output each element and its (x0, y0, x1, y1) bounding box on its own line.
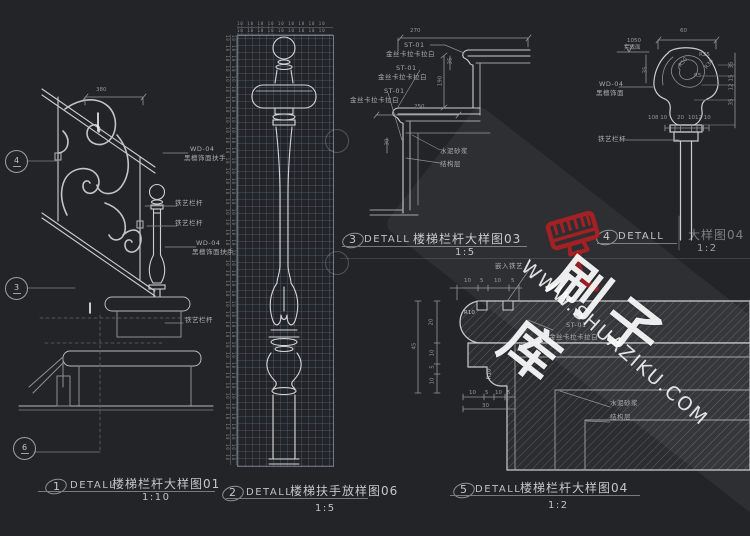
detail-title: 楼梯栏杆大样图01 (112, 478, 220, 490)
radius-label: R10 (487, 369, 493, 380)
detail-scale: 1:2 (548, 501, 569, 511)
detail-scale: 1:10 (142, 493, 170, 503)
material-label: 铁艺栏杆 (598, 136, 626, 143)
section-ref-bubble: 3 (5, 277, 28, 300)
material-label: 金丝卡拉卡拉白 (350, 97, 399, 104)
radius-label: R25 (699, 53, 710, 59)
handrail-outline (654, 48, 718, 240)
dim-label: 35 (643, 67, 649, 74)
dim-label: 10 (495, 391, 502, 397)
dim-label: 35 (448, 58, 454, 65)
material-label: ST-01 (384, 88, 405, 95)
material-label: 铁艺栏杆 (175, 220, 203, 227)
detail-title: 楼梯扶手放样图06 (290, 485, 398, 497)
dim-label: 30 (482, 404, 489, 410)
dim-label: 10 (469, 391, 476, 397)
radius-label: R5 (694, 74, 701, 80)
detail-number: 2 (229, 487, 236, 498)
material-label: 金丝卡拉卡拉白 (386, 51, 435, 58)
material-label: 金丝卡拉卡拉白 (378, 74, 427, 81)
ref-number: 3 (14, 283, 19, 292)
ref-number: 4 (14, 156, 19, 165)
dim-label: 270 (410, 29, 421, 35)
material-label: ST-01 (396, 65, 417, 72)
section-ref-bubble: 6 (13, 437, 36, 460)
dim-label: 380 (96, 88, 107, 94)
construction-lines (40, 315, 213, 450)
ref-number: 6 (22, 443, 27, 452)
detail-number: 5 (460, 484, 467, 495)
detail-number: 3 (349, 234, 356, 245)
material-label: 黑檀饰面扶手 (184, 155, 226, 162)
cad-sheet: { "watermark": { "brand": "刷子库", "url": … (0, 0, 750, 536)
detail1-stair-elevation-drawing (5, 75, 230, 480)
material-label: 黑檀饰面 (596, 90, 624, 97)
dim-label: 35 (729, 62, 735, 69)
newel-post (149, 185, 165, 298)
material-label: 铁艺栏杆 (185, 317, 213, 324)
dim-label: 15 (729, 75, 735, 82)
detail-scale: 1:5 (315, 504, 336, 514)
dim-label: 190 (438, 76, 444, 87)
detail-title: 楼梯栏杆大样图04 (520, 482, 628, 494)
material-label: ST-01 (404, 42, 425, 49)
detail-kind: DETALL (70, 481, 116, 491)
dim-label: 10 (430, 378, 436, 385)
detail-kind: DETALL (475, 485, 521, 495)
dim-label: 60 (680, 29, 687, 35)
detail-kind: DETALL (246, 488, 292, 498)
title-underline (38, 491, 215, 492)
title-underline (450, 495, 640, 496)
radius-label: R10 (464, 311, 475, 317)
dim-label: 5 (485, 391, 489, 397)
dim-label: 12 (729, 84, 735, 91)
detail-title: 大样图04 (688, 229, 744, 241)
dim-label: 30 (385, 139, 391, 146)
iron-scroll-panel (59, 100, 141, 252)
material-label: WD-04 (599, 81, 624, 88)
dim-label: 250 (414, 105, 425, 111)
title-underline (226, 498, 368, 499)
material-label: WD-04 (196, 240, 221, 247)
section-ref-bubble: 4 (5, 150, 28, 173)
dim-label: 10 (430, 350, 436, 357)
detail2-baluster-drawing (225, 15, 340, 475)
dim-label: 20 (429, 319, 435, 326)
dim-label: 1012 10 (688, 116, 711, 122)
dim-label: 35 (729, 99, 735, 106)
dim-label: 5 (430, 365, 436, 369)
material-label: 铁艺栏杆 (175, 200, 203, 207)
level-label: 1050 (627, 39, 641, 45)
level-label: 完成面 (624, 46, 641, 52)
detail-scale: 1:2 (697, 244, 718, 254)
dim-label: 20 (677, 116, 684, 122)
dim-label: 108 10 (648, 116, 667, 122)
stair-steps (19, 297, 213, 410)
dim-label: 45 (412, 343, 418, 350)
dim-label: 5 (507, 391, 511, 397)
material-label: WD-04 (190, 146, 215, 153)
